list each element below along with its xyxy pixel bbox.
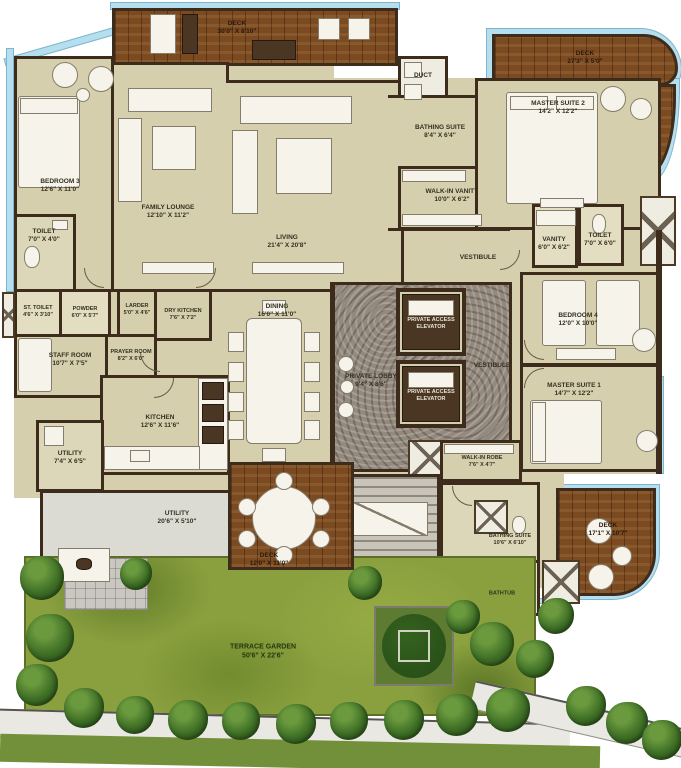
room-label-master-suite2: MASTER SUITE 214'2" X 12'2"	[531, 100, 585, 116]
room-dims: 4'6" X 3'10"	[23, 312, 53, 319]
room-label-utility2: UTILITY20'6" X 5'10"	[158, 510, 197, 526]
room-name: MASTER SUITE 1	[547, 382, 601, 390]
wardrobe	[402, 214, 482, 226]
room-dims: 7'6" X 4'7"	[462, 462, 503, 469]
appliance	[202, 404, 224, 422]
room-name: WALK-IN ROBE	[462, 455, 503, 462]
room-name: VESTIBULE	[474, 362, 510, 370]
sofa	[240, 96, 352, 124]
room-name: VANITY	[538, 236, 570, 244]
armchair	[88, 66, 114, 92]
stair-landing	[352, 502, 428, 536]
room-dims: 17'1" X 10'7"	[589, 530, 628, 538]
room-dims: 12'0" X 11'0"	[250, 560, 289, 568]
dresser	[556, 348, 616, 360]
bed-pillow	[532, 402, 546, 462]
room-name: TOILET	[584, 232, 616, 240]
shaft-hatch-left	[2, 292, 15, 338]
dining-table	[246, 318, 302, 444]
room-name: DRY KITCHEN	[164, 308, 201, 315]
room-dims: 8'2" X 6'0"	[110, 356, 151, 363]
room-name: PRAYER ROOM	[110, 349, 151, 356]
room-dims: 9'4" X 8'6"	[345, 381, 397, 389]
deck-table	[612, 546, 632, 566]
room-name: DUCT	[414, 72, 432, 80]
shower	[474, 500, 508, 534]
room-dims: 7'0" X 4'0"	[28, 236, 60, 244]
room-label-toilet-bed3: TOILET7'0" X 4'0"	[28, 228, 60, 244]
armchair	[636, 430, 658, 452]
armchair	[600, 86, 626, 112]
room-label-vanity2: VANITY6'0" X 6'2"	[538, 236, 570, 252]
round-dining-table	[252, 486, 316, 550]
room-dims: 16'0" X 11'0"	[258, 311, 297, 319]
room-dims: 14'7" X 12'2"	[547, 390, 601, 398]
room-name: BEDROOM 3	[40, 178, 79, 186]
sofa	[232, 130, 258, 214]
wardrobe	[444, 444, 514, 454]
dining-chair	[228, 362, 244, 382]
tree-icon	[516, 640, 554, 678]
coffee-table	[152, 126, 196, 170]
room-label-walkin-robe: WALK-IN ROBE7'6" X 4'7"	[462, 455, 503, 469]
room-name: PRIVATE ACCESS	[407, 317, 454, 324]
dining-chair	[228, 332, 244, 352]
coffee-table	[276, 138, 332, 194]
elevator2-door	[408, 372, 454, 388]
toilet-wc	[24, 246, 40, 268]
room-name: BATHING SUITE	[489, 533, 531, 540]
room-label-powder: POWDER6'0" X 5'7"	[72, 306, 99, 320]
deck-chair	[312, 530, 330, 548]
room-label-bedroom4: BEDROOM 412'0" X 10'0"	[558, 312, 597, 328]
toilet-wc	[512, 516, 526, 534]
room-name: VESTIBULE	[460, 254, 496, 262]
room-name: PRIVATE LOBBY	[345, 373, 397, 381]
room-label-walkin-vanity: WALK-IN VANITY10'0" X 6'2"	[426, 188, 479, 204]
room-dims: 7'4" X 6'5"	[54, 458, 86, 466]
dining-chair	[304, 332, 320, 352]
room-dims: 30'0" X 8'10"	[218, 28, 257, 36]
deck-chair	[312, 498, 330, 516]
appliance	[202, 426, 224, 444]
room-dims: 10'0" X 6'2"	[426, 196, 479, 204]
room-label-bathtub: BATHTUB	[489, 591, 515, 598]
bench	[540, 198, 584, 208]
dining-chair	[304, 392, 320, 412]
room-name: STAFF ROOM	[49, 352, 92, 360]
room-name: TERRACE GARDEN	[230, 643, 296, 652]
room-label-dry-kitchen: DRY KITCHEN7'6" X 7'2"	[164, 308, 201, 322]
bed-pillow	[20, 98, 78, 114]
room-name: DECK	[589, 522, 628, 530]
room-dims: 8'4" X 6'4"	[415, 132, 465, 140]
room-dims: 12'6" X 11'0"	[40, 186, 79, 194]
room-dims: 7'0" X 6'0"	[584, 240, 616, 248]
room-dims: 7'6" X 7'2"	[164, 315, 201, 322]
room-dims: 27'3" X 5'0"	[567, 58, 602, 66]
room-name: DINING	[258, 303, 297, 311]
room-label-vestibule-top: VESTIBULE	[460, 254, 496, 262]
room-label-deck-dining: DECK12'0" X 11'0"	[250, 552, 289, 568]
tree-icon	[642, 720, 681, 760]
tree-icon	[538, 598, 574, 634]
room-label-terrace-garden: TERRACE GARDEN50'6" X 22'6"	[230, 643, 296, 661]
deck-bench	[150, 14, 176, 54]
room-name: DECK	[218, 20, 257, 28]
deck-seat	[318, 18, 340, 40]
room-name: ST. TOILET	[23, 305, 53, 312]
sink	[130, 450, 150, 462]
room-label-elevator1: PRIVATE ACCESSELEVATOR	[407, 317, 454, 331]
room-name: UTILITY	[158, 510, 197, 518]
armchair	[632, 328, 656, 352]
room-label-family-lounge: FAMILY LOUNGE12'10" X 11'2"	[142, 204, 195, 220]
room-dims: 12'6" X 11'6"	[141, 422, 180, 430]
room-dims: 6'0" X 6'2"	[538, 244, 570, 252]
vanity-counter	[536, 210, 576, 226]
washer	[44, 426, 64, 446]
room-label-living: LIVING21'4" X 20'8"	[268, 234, 307, 250]
appliance	[404, 84, 422, 100]
room-label-prayer-room: PRAYER ROOM8'2" X 6'0"	[110, 349, 151, 363]
tv-console	[252, 262, 344, 274]
floor-plan: DECK30'0" X 8'10" BEDROOM 312'6" X 11'0"…	[0, 0, 681, 768]
deck-chair	[238, 498, 256, 516]
room-label-st-toilet: ST. TOILET4'6" X 3'10"	[23, 305, 53, 319]
room-dims: 10'7" X 7'5"	[49, 360, 92, 368]
room-name: FAMILY LOUNGE	[142, 204, 195, 212]
room-name: UTILITY	[54, 450, 86, 458]
dining-chair	[228, 392, 244, 412]
room-name: DECK	[567, 50, 602, 58]
room-name: LARDER	[124, 303, 151, 310]
room-label-staff-room: STAFF ROOM10'7" X 7'5"	[49, 352, 92, 368]
room-dims: 20'6" X 5'10"	[158, 518, 197, 526]
deck-planter	[252, 40, 296, 60]
deck-chair	[238, 530, 256, 548]
lobby-decor	[338, 402, 354, 418]
room-name: MASTER SUITE 2	[531, 100, 585, 108]
dining-chair	[228, 420, 244, 440]
room-dims: 6'0" X 5'7"	[72, 313, 99, 320]
dining-chair	[304, 420, 320, 440]
dining-chair	[304, 362, 320, 382]
room-dims: 14'2" X 12'2"	[531, 108, 585, 116]
room-dims: 10'6" X 6'10"	[489, 540, 531, 547]
sofa	[128, 88, 212, 112]
bed	[18, 338, 52, 392]
deck-chair	[275, 472, 293, 490]
room-label-vestibule-mid: VESTIBULE	[474, 362, 510, 370]
room-label-bathing-suite2: BATHING SUITE8'4" X 6'4"	[415, 124, 465, 140]
room-label-kitchen: KITCHEN12'6" X 11'6"	[141, 414, 180, 430]
room-name: BATHING SUITE	[415, 124, 465, 132]
armchair	[52, 62, 78, 88]
room-name: TOILET	[28, 228, 60, 236]
glass-rail-left	[6, 48, 14, 292]
armchair	[630, 98, 652, 120]
dining-chair	[262, 448, 286, 462]
room-label-utility1: UTILITY7'4" X 6'5"	[54, 450, 86, 466]
room-name: KITCHEN	[141, 414, 180, 422]
room-name: ELEVATOR	[407, 324, 454, 331]
deck-chair	[588, 564, 614, 590]
deck-seat	[348, 18, 370, 40]
deck-planter	[182, 14, 198, 54]
room-name: BATHTUB	[489, 591, 515, 598]
kitchen-counter	[104, 446, 200, 470]
room-name: WALK-IN VANITY	[426, 188, 479, 196]
room-label-duct: DUCT	[414, 72, 432, 80]
appliance	[202, 382, 224, 400]
wardrobe	[402, 170, 466, 182]
room-label-deck-top: DECK30'0" X 8'10"	[218, 20, 257, 36]
elevator1-door	[408, 300, 454, 316]
bbq-grill	[76, 558, 92, 570]
sofa	[118, 118, 142, 202]
room-label-toilet2: TOILET7'0" X 6'0"	[584, 232, 616, 248]
room-label-deck-bottom-right: DECK17'1" X 10'7"	[589, 522, 628, 538]
room-dims: 50'6" X 22'6"	[230, 652, 296, 661]
room-label-deck-top-right: DECK27'3" X 5'0"	[567, 50, 602, 66]
room-name: DECK	[250, 552, 289, 560]
room-name: POWDER	[72, 306, 99, 313]
garden-feature-inner	[398, 630, 430, 662]
side-table	[76, 88, 90, 102]
room-label-elevator2: PRIVATE ACCESSELEVATOR	[407, 389, 454, 403]
room-name: PRIVATE ACCESS	[407, 389, 454, 396]
room-label-bathing-suite1: BATHING SUITE10'6" X 6'10"	[489, 533, 531, 547]
lobby-decor	[338, 356, 354, 372]
room-label-private-lobby: PRIVATE LOBBY9'4" X 8'6"	[345, 373, 397, 389]
room-label-larder: LARDER5'0" X 4'6"	[124, 303, 151, 317]
room-name: BEDROOM 4	[558, 312, 597, 320]
room-label-bedroom3: BEDROOM 312'6" X 11'0"	[40, 178, 79, 194]
room-dims: 21'4" X 20'8"	[268, 242, 307, 250]
room-dims: 12'0" X 10'0"	[558, 320, 597, 328]
room-dims: 5'0" X 4'6"	[124, 310, 151, 317]
room-dims: 12'10" X 11'2"	[142, 212, 195, 220]
room-name: ELEVATOR	[407, 396, 454, 403]
room-name: LIVING	[268, 234, 307, 242]
room-label-master-suite1: MASTER SUITE 114'7" X 12'2"	[547, 382, 601, 398]
room-label-dining: DINING16'0" X 11'0"	[258, 303, 297, 319]
